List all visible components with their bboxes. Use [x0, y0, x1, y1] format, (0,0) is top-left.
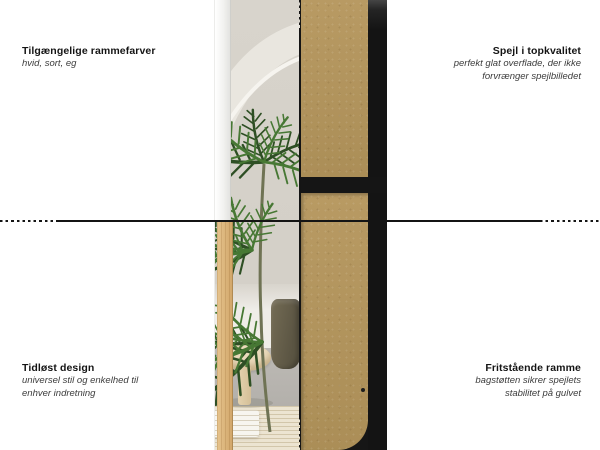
mirror-back-panel: [300, 0, 387, 450]
divider-vertical-dotted-top: [299, 0, 301, 28]
feature-note-freestanding-frame: Fritstående ramme bagstøtten sikrer spej…: [475, 362, 581, 400]
mirror-frame-white-strip: [215, 0, 231, 221]
divider-horizontal-dotted-left: [0, 220, 58, 222]
support-bracket-bar: [300, 177, 387, 193]
feature-title: Tilgængelige rammefarver: [22, 45, 156, 57]
mirror-frame-oak-strip: [217, 221, 233, 450]
black-frame-side-bar: [368, 0, 387, 450]
feature-title: Fritstående ramme: [475, 362, 581, 374]
feature-title: Tidløst design: [22, 362, 138, 374]
mirror-front-photo-panel: [214, 0, 301, 450]
feature-subtitle-line: perfekt glat overflade, der ikke: [454, 58, 581, 70]
feature-subtitle-line: enhver indretning: [22, 388, 138, 400]
feature-subtitle-line: forvrænger spejlbilledet: [454, 71, 581, 83]
feature-subtitle-line: universel stil og enkelhed til: [22, 375, 138, 387]
feature-title: Spejl i topkvalitet: [454, 45, 581, 57]
support-leg-board: [301, 193, 368, 450]
product-infographic: Tilgængelige rammefarver hvid, sort, eg …: [0, 0, 600, 450]
feature-note-mirror-quality: Spejl i topkvalitet perfekt glat overfla…: [454, 45, 581, 83]
feature-subtitle-line: stabilitet på gulvet: [475, 388, 581, 400]
feature-note-frame-colors: Tilgængelige rammefarver hvid, sort, eg: [22, 45, 156, 71]
feature-subtitle-line: hvid, sort, eg: [22, 58, 156, 70]
divider-horizontal-dotted-right: [540, 220, 600, 222]
divider-vertical-solid: [299, 28, 301, 417]
feature-subtitle-line: bagstøtten sikrer spejlets: [475, 375, 581, 387]
feature-note-timeless-design: Tidløst design universel stil og enkelhe…: [22, 362, 138, 400]
mdf-back-board: [301, 0, 368, 177]
divider-vertical-dotted-bottom: [299, 417, 301, 450]
screw-dot: [361, 388, 365, 392]
